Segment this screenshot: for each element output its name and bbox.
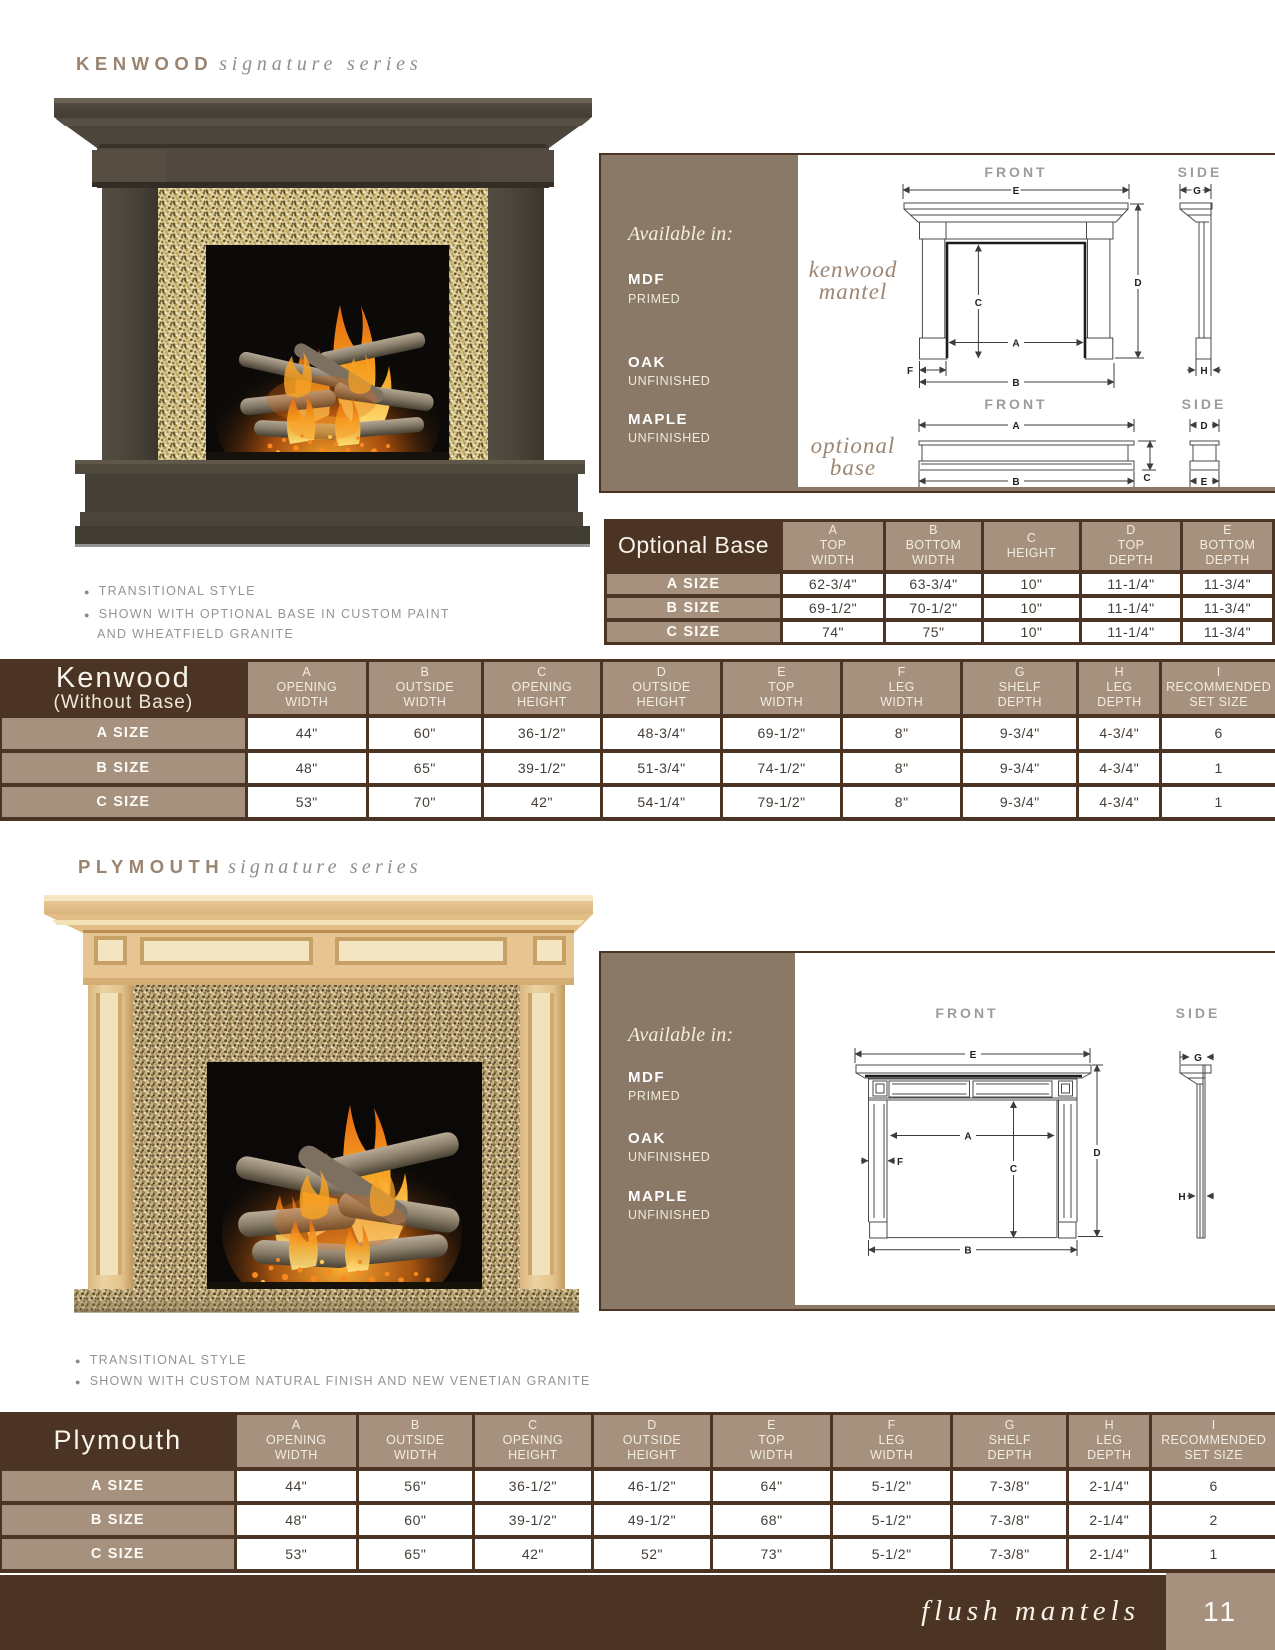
svg-text:D: D: [1134, 278, 1141, 289]
svg-text:G: G: [1194, 1053, 1202, 1064]
svg-text:FRONT: FRONT: [984, 396, 1047, 412]
svg-text:E: E: [1013, 186, 1020, 197]
svg-text:FRONT: FRONT: [984, 164, 1047, 180]
svg-text:G: G: [1193, 186, 1201, 197]
svg-text:D: D: [1200, 421, 1207, 432]
svg-text:F: F: [897, 1157, 903, 1168]
svg-text:C: C: [1143, 473, 1150, 484]
svg-text:A: A: [964, 1132, 971, 1143]
svg-text:SIDE: SIDE: [1178, 164, 1223, 180]
svg-text:SIDE: SIDE: [1176, 1005, 1221, 1021]
svg-text:A: A: [1012, 421, 1019, 432]
svg-text:C: C: [1010, 1164, 1017, 1175]
svg-text:D: D: [1093, 1148, 1100, 1159]
svg-text:E: E: [1201, 477, 1208, 487]
svg-text:FRONT: FRONT: [935, 1005, 998, 1021]
svg-text:B: B: [1012, 477, 1019, 487]
svg-text:A: A: [1012, 339, 1019, 350]
svg-text:SIDE: SIDE: [1182, 396, 1227, 412]
svg-text:B: B: [964, 1246, 971, 1257]
svg-text:H: H: [1178, 1192, 1185, 1203]
svg-text:B: B: [1012, 378, 1019, 389]
svg-text:E: E: [970, 1050, 977, 1061]
svg-text:H: H: [1200, 366, 1207, 377]
svg-text:C: C: [975, 298, 982, 309]
svg-text:F: F: [907, 366, 913, 377]
